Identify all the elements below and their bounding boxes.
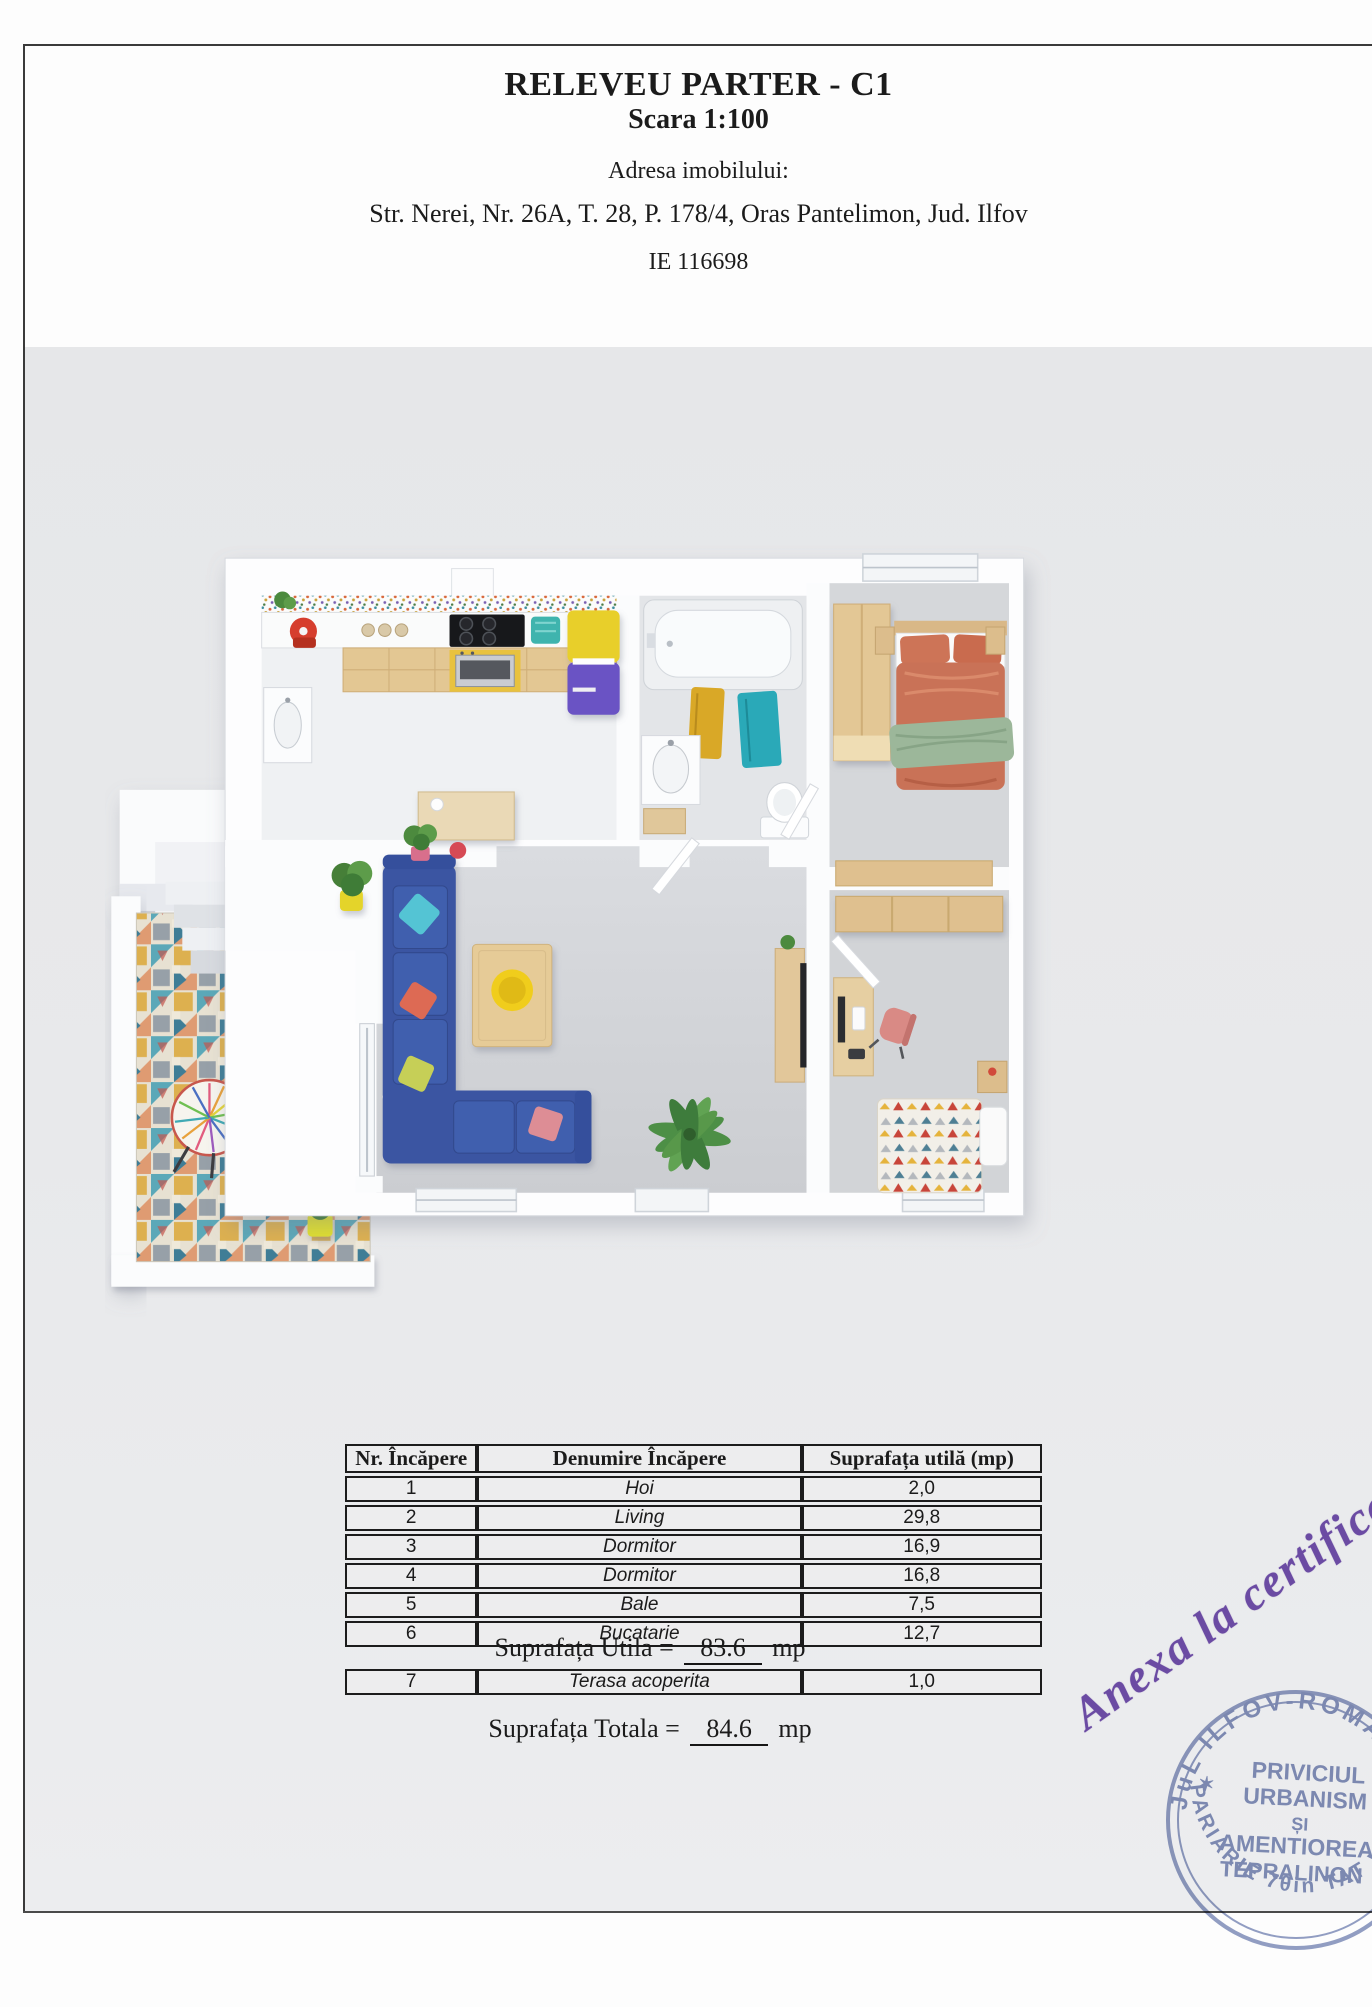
room-area: 1,0 [802, 1669, 1042, 1695]
sideboard [836, 861, 993, 886]
room-name: Living [477, 1505, 801, 1531]
stand-mixer [290, 618, 317, 648]
table-row: 5 Bale 7,5 [345, 1592, 1042, 1618]
total-area-value: 84.6 [690, 1714, 768, 1746]
counter-jars [362, 624, 408, 637]
floor-plan-render [105, 531, 1055, 1413]
room-area: 16,8 [802, 1563, 1042, 1589]
room-nr: 5 [345, 1592, 477, 1618]
room-nr: 4 [345, 1563, 477, 1589]
room-name: Dormitor [477, 1563, 801, 1589]
useful-area-label: Suprafața Utila = [494, 1633, 673, 1662]
terrace-table-wrap: 7 Terasa acoperita 1,0 [345, 1666, 1042, 1698]
kitchen-sink-unit [264, 688, 312, 763]
property-address: Str. Nerei, Nr. 26A, T. 28, P. 178/4, Or… [25, 199, 1372, 229]
room-area: 16,9 [802, 1534, 1042, 1560]
page-frame-top [23, 44, 1372, 46]
coffee-table [472, 944, 551, 1046]
total-area-total: Suprafața Totala = 84.6 mp [345, 1714, 955, 1746]
total-area-label: Suprafața Totala = [488, 1714, 679, 1743]
room-name: Hoi [477, 1476, 801, 1502]
nightstand-right [986, 627, 1005, 654]
desk [834, 978, 874, 1076]
room-area: 7,5 [802, 1592, 1042, 1618]
room-nr: 7 [345, 1669, 477, 1695]
drawing-scale: Scara 1:100 [25, 104, 1372, 136]
areas-table: Nr. Încăpere Denumire Încăpere Suprafața… [345, 1441, 1042, 1650]
cadastral-id: IE 116698 [25, 249, 1372, 276]
red-object [450, 842, 467, 859]
table-header-row: Nr. Încăpere Denumire Încăpere Suprafața… [345, 1444, 1042, 1473]
bedroom2-nightstand [978, 1061, 1007, 1092]
room-area: 29,8 [802, 1505, 1042, 1531]
hall-window [635, 1189, 708, 1212]
room-area: 2,0 [802, 1476, 1042, 1502]
stamp-star: ✶ [1196, 1773, 1215, 1797]
col-header-area: Suprafața utilă (mp) [802, 1444, 1042, 1473]
table-row: 7 Terasa acoperita 1,0 [345, 1669, 1042, 1695]
tv [800, 963, 806, 1067]
bathroom-sink [642, 736, 700, 805]
terrace-row-table: 7 Terasa acoperita 1,0 [345, 1666, 1042, 1698]
room-nr: 1 [345, 1476, 477, 1502]
bed2-pillow [980, 1107, 1007, 1165]
room-name: Terasa acoperita [477, 1669, 801, 1695]
col-header-nr: Nr. Încăpere [345, 1444, 477, 1473]
table-row: 4 Dormitor 16,8 [345, 1563, 1042, 1589]
table-row: 1 Hoi 2,0 [345, 1476, 1042, 1502]
room-name: Bale [477, 1592, 801, 1618]
room-nr: 2 [345, 1505, 477, 1531]
towel-teal [737, 691, 782, 769]
useful-area-value: 83.6 [684, 1633, 762, 1665]
tv-unit [775, 935, 806, 1082]
bath-shelf [644, 809, 686, 834]
col-header-name: Denumire Încăpere [477, 1444, 801, 1473]
nightstand-left [875, 627, 894, 654]
useful-area-unit: mp [772, 1633, 805, 1662]
room-name: Dormitor [477, 1534, 801, 1560]
bedroom2-wardrobe [836, 896, 1003, 931]
total-area-unit: mp [778, 1714, 811, 1743]
table-row: 2 Living 29,8 [345, 1505, 1042, 1531]
table-row: 3 Dormitor 16,9 [345, 1534, 1042, 1560]
monitor [838, 997, 845, 1043]
oven [450, 650, 521, 692]
bathtub [644, 600, 803, 690]
stamp-line-3: ȘI [1291, 1814, 1309, 1835]
stamp-line-2: URBANISM [1243, 1782, 1368, 1814]
kitchen-hood [452, 569, 494, 598]
useful-area-total: Suprafața Utila = 83.6 mp [345, 1633, 955, 1665]
cooktop [450, 615, 525, 647]
fridge [567, 610, 619, 714]
terrace-sliding-door [360, 1024, 375, 1176]
kitchen-backsplash [262, 596, 617, 613]
address-label: Adresa imobilului: [25, 158, 1372, 185]
room-nr: 3 [345, 1534, 477, 1560]
areas-table-wrap: Nr. Încăpere Denumire Încăpere Suprafața… [345, 1441, 1042, 1650]
teal-basket [531, 617, 560, 644]
official-stamp: JuL ILFOV-ROMAN PARIARIE 7θin TAT VELTAC… [1109, 1633, 1372, 2007]
page-title: RELEVEU PARTER - C1 [25, 66, 1372, 104]
